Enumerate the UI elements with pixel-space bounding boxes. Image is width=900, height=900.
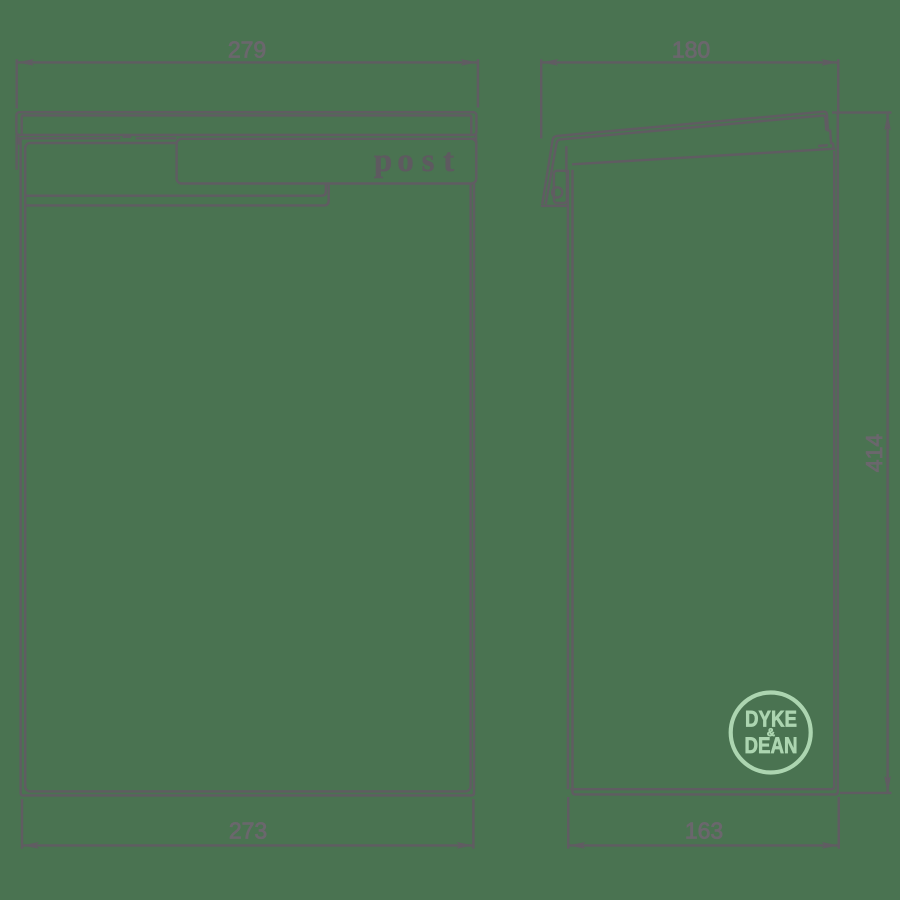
svg-text:414: 414: [861, 434, 887, 473]
svg-text:273: 273: [229, 818, 267, 844]
svg-text:p: p: [374, 143, 392, 179]
svg-text:DEAN: DEAN: [745, 732, 798, 758]
svg-text:163: 163: [685, 818, 723, 844]
svg-text:279: 279: [228, 37, 266, 63]
svg-text:s: s: [422, 143, 435, 179]
svg-text:t: t: [443, 143, 454, 179]
svg-text:180: 180: [672, 37, 710, 63]
svg-text:o: o: [397, 143, 414, 179]
